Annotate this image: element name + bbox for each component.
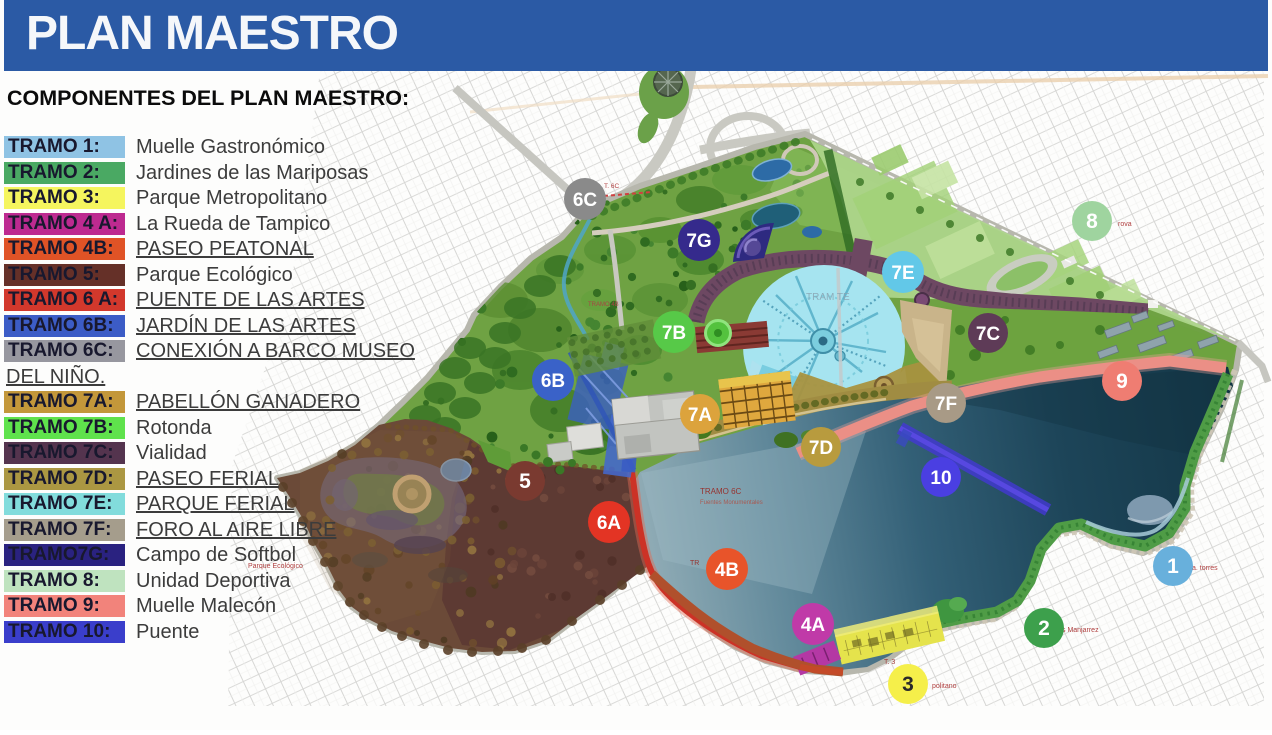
svg-text:T. 6C: T. 6C	[604, 183, 619, 190]
svg-text:7E: 7E	[891, 263, 914, 284]
svg-text:7G: 7G	[686, 231, 711, 252]
svg-text:9: 9	[1116, 370, 1128, 393]
svg-text:politano: politano	[932, 683, 957, 690]
svg-text:8: 8	[1086, 210, 1098, 233]
svg-text:7C: 7C	[976, 324, 1001, 345]
svg-text:10: 10	[930, 468, 951, 489]
svg-text:2: 2	[1038, 617, 1050, 640]
svg-text:TRAMO 6C: TRAMO 6C	[700, 487, 742, 496]
svg-text:3: 3	[902, 673, 914, 696]
svg-text:6B: 6B	[541, 371, 565, 392]
svg-text:7B: 7B	[662, 323, 686, 344]
svg-text:7A: 7A	[688, 405, 713, 426]
svg-text:TR: TR	[690, 560, 699, 567]
svg-text:4A: 4A	[801, 615, 826, 636]
svg-text:5: 5	[519, 470, 531, 493]
svg-text:7D: 7D	[809, 438, 833, 459]
svg-text:4B: 4B	[715, 560, 739, 581]
svg-text:rova: rova	[1118, 221, 1132, 228]
svg-text:1: 1	[1167, 555, 1179, 578]
svg-text:s Manjarrez: s Manjarrez	[1062, 627, 1099, 634]
svg-text:6C: 6C	[573, 190, 598, 211]
svg-text:a. torres: a. torres	[1192, 565, 1218, 572]
svg-text:TRAM TE: TRAM TE	[806, 292, 850, 303]
svg-text:7F: 7F	[935, 394, 957, 415]
svg-text:T. 3: T. 3	[884, 659, 895, 666]
svg-text:TRAMO 4B: TRAMO 4B	[588, 302, 619, 308]
svg-text:6A: 6A	[597, 513, 622, 534]
svg-text:Fuentes Monumentales: Fuentes Monumentales	[700, 500, 763, 506]
